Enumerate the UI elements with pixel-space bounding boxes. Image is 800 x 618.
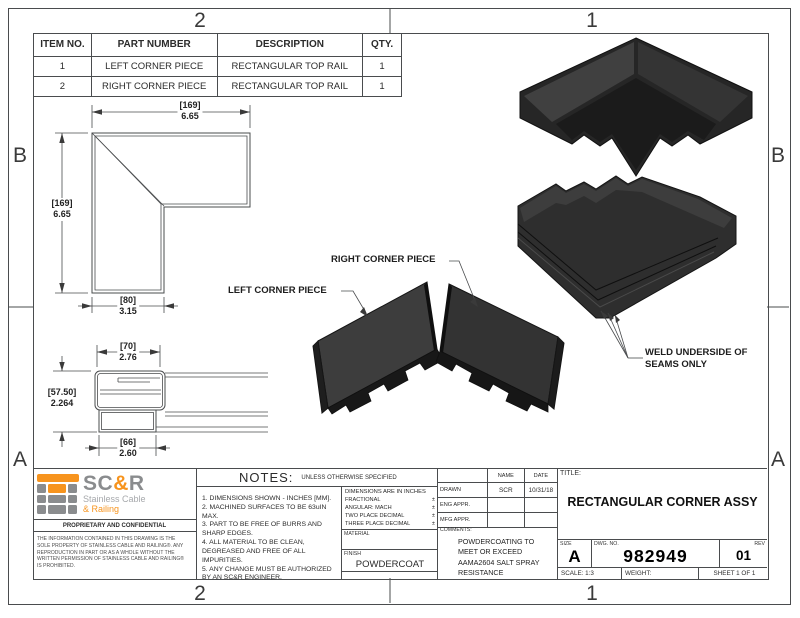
dim-in: 2.264: [48, 398, 77, 409]
note-item: 4. ALL MATERIAL TO BE CLEAN, DEGREASED A…: [202, 539, 337, 565]
logo-sub-2: & Railing: [83, 504, 146, 514]
weight-value: WEIGHT:: [621, 568, 698, 579]
size-box: SIZE A: [558, 540, 591, 567]
size-dwg-rev-row: SIZE A DWG. NO. 982949 REV 01: [558, 539, 767, 567]
approval-row-eng: ENG APPR.: [438, 498, 557, 513]
dim-plan-bottom: [80] 3.15: [117, 295, 139, 318]
notes-list: 1. DIMENSIONS SHOWN - INCHES [MM]. 2. MA…: [202, 495, 337, 583]
bom-cell: RIGHT CORNER PIECE: [91, 77, 217, 96]
iso-corner-pieces: [313, 282, 564, 414]
dim-mm: [57.50]: [48, 387, 77, 398]
section-view-linework: [53, 345, 268, 456]
comments-label: COMMENTS:: [438, 526, 557, 534]
logo-sc: SC: [83, 472, 113, 495]
finish-value: POWDERCOAT: [342, 559, 438, 570]
approval-name: SCR: [487, 483, 524, 497]
callout-weld-note: WELD UNDERSIDE OF SEAMS ONLY: [645, 347, 759, 372]
dim-section-left: [57.50] 2.264: [46, 387, 79, 410]
company-logo: SC&R Stainless Cable & Railing: [37, 474, 146, 515]
bom-header-part: PART NUMBER: [91, 33, 217, 56]
title-label: TITLE:: [558, 469, 767, 478]
logo-cell: SC&R Stainless Cable & Railing PROPRIETA…: [33, 469, 196, 579]
dim-mm: [169]: [179, 100, 200, 111]
title-cell: TITLE: RECTANGULAR CORNER ASSY SIZE A DW…: [557, 469, 767, 579]
title-block: SC&R Stainless Cable & Railing PROPRIETA…: [33, 468, 767, 579]
dim-in: 3.15: [119, 306, 137, 317]
dim-mm: [169]: [51, 198, 72, 209]
dim-section-bottom: [66] 2.60: [117, 437, 139, 460]
proprietary-body: THE INFORMATION CONTAINED IN THIS DRAWIN…: [37, 536, 187, 570]
bom-cell: 1: [362, 57, 401, 76]
bom-table: ITEM NO. PART NUMBER DESCRIPTION QTY. 1 …: [33, 33, 402, 97]
approvals-header-row: NAME DATE: [438, 469, 557, 483]
approval-date: 10/31/18: [524, 483, 557, 497]
dwg-number: 982949: [592, 546, 719, 567]
logo-text: SC&R Stainless Cable & Railing: [83, 474, 146, 515]
size-value: A: [558, 547, 591, 567]
date-header: DATE: [524, 469, 557, 482]
notes-cell: NOTES: UNLESS OTHERWISE SPECIFIED 1. DIM…: [196, 469, 437, 579]
tolerance-label: FRACTIONAL: [345, 496, 380, 504]
bom-cell: RECTANGULAR TOP RAIL: [217, 57, 363, 76]
rev-value: 01: [720, 548, 767, 563]
tolerance-value: ±: [432, 520, 435, 528]
notes-header: NOTES: UNLESS OTHERWISE SPECIFIED: [197, 469, 437, 487]
notes-subtitle: UNLESS OTHERWISE SPECIFIED: [301, 475, 396, 481]
approval-label: MFG APPR.: [438, 513, 487, 527]
callout-left-corner-piece: LEFT CORNER PIECE: [228, 285, 327, 297]
iso-exploded-assembly: [518, 38, 752, 318]
approval-label: ENG APPR.: [438, 498, 487, 512]
table-row: 2 RIGHT CORNER PIECE RECTANGULAR TOP RAI…: [33, 77, 402, 97]
finish-box: FINISH POWDERCOAT: [342, 549, 438, 571]
dim-mm: [66]: [119, 437, 137, 448]
dim-in: 6.65: [51, 209, 72, 220]
tolerance-column: DIMENSIONS ARE IN INCHES FRACTIONAL± ANG…: [341, 487, 438, 579]
dim-in: 2.76: [119, 352, 137, 363]
rev-label: REV: [720, 540, 767, 548]
logo-r: R: [129, 472, 145, 495]
tolerance-value: ±: [432, 512, 435, 520]
comments-text: POWDERCOATING TO MEET OR EXCEED AAMA2604…: [458, 537, 555, 579]
sheet-value: SHEET 1 OF 1: [698, 568, 767, 579]
dwg-box: DWG. NO. 982949: [591, 540, 719, 567]
finish-label: FINISH: [342, 550, 438, 558]
note-item: 3. PART TO BE FREE OF BURRS AND SHARP ED…: [202, 521, 337, 539]
comments-area: COMMENTS: POWDERCOATING TO MEET OR EXCEE…: [438, 526, 557, 579]
approval-date: [524, 498, 557, 512]
logo-sub-1: Stainless Cable: [83, 494, 146, 504]
bom-header-item: ITEM NO.: [33, 33, 91, 56]
note-item: 5. ANY CHANGE MUST BE AUTHORIZED BY AN S…: [202, 566, 337, 584]
bom-header-qty: QTY.: [362, 33, 401, 56]
material-box: MATERIAL: [342, 529, 438, 549]
bom-cell: 1: [33, 57, 91, 76]
scale-row: SCALE: 1:3 WEIGHT: SHEET 1 OF 1: [558, 567, 767, 579]
railing-logo-icon: [37, 474, 79, 514]
proprietary-heading: PROPRIETARY AND CONFIDENTIAL: [33, 519, 196, 532]
bom-cell: 2: [33, 77, 91, 96]
tolerance-title: DIMENSIONS ARE IN INCHES: [345, 489, 435, 495]
drawing-title: RECTANGULAR CORNER ASSY: [558, 495, 767, 509]
dim-plan-top: [169] 6.65: [177, 100, 202, 123]
tolerance-label: THREE PLACE DECIMAL: [345, 520, 410, 528]
bom-cell: LEFT CORNER PIECE: [91, 57, 217, 76]
material-label: MATERIAL: [342, 530, 438, 538]
approval-label: DRAWN: [438, 483, 487, 497]
name-header: NAME: [487, 469, 524, 482]
bom-cell: 1: [362, 77, 401, 96]
note-item: 1. DIMENSIONS SHOWN - INCHES [MM].: [202, 495, 337, 504]
tolerance-value: ±: [432, 496, 435, 504]
approval-name: [487, 498, 524, 512]
logo-amp: &: [113, 472, 129, 495]
logo-bar: [37, 474, 79, 482]
approvals-cell: NAME DATE DRAWN SCR 10/31/18 ENG APPR. M…: [437, 469, 557, 579]
approval-date: [524, 513, 557, 527]
dim-mm: [80]: [119, 295, 137, 306]
bom-cell: RECTANGULAR TOP RAIL: [217, 77, 363, 96]
approval-row-drawn: DRAWN SCR 10/31/18: [438, 483, 557, 498]
approval-name: [487, 513, 524, 527]
callout-right-corner-piece: RIGHT CORNER PIECE: [331, 254, 436, 266]
dim-in: 2.60: [119, 448, 137, 459]
scale-value: SCALE: 1:3: [558, 568, 621, 579]
notes-title: NOTES:: [239, 470, 293, 485]
tolerance-value: ±: [432, 504, 435, 512]
tolerance-label: TWO PLACE DECIMAL: [345, 512, 404, 520]
drawing-sheet: 2 1 2 1 B A B A: [0, 0, 800, 618]
tolerance-label: ANGULAR: MACH: [345, 504, 392, 512]
note-item: 2. MACHINED SURFACES TO BE 63uIN MAX.: [202, 504, 337, 522]
dim-mm: [70]: [119, 341, 137, 352]
tolerance-box: DIMENSIONS ARE IN INCHES FRACTIONAL± ANG…: [342, 487, 438, 529]
dim-plan-left: [169] 6.65: [49, 198, 74, 221]
dim-in: 6.65: [179, 111, 200, 122]
dim-section-top: [70] 2.76: [117, 341, 139, 364]
bom-header-row: ITEM NO. PART NUMBER DESCRIPTION QTY.: [33, 33, 402, 57]
bom-header-desc: DESCRIPTION: [217, 33, 363, 56]
plan-view-linework: [55, 105, 250, 313]
table-row: 1 LEFT CORNER PIECE RECTANGULAR TOP RAIL…: [33, 57, 402, 77]
rev-box: REV 01: [719, 540, 767, 567]
empty-strip: [342, 571, 438, 579]
